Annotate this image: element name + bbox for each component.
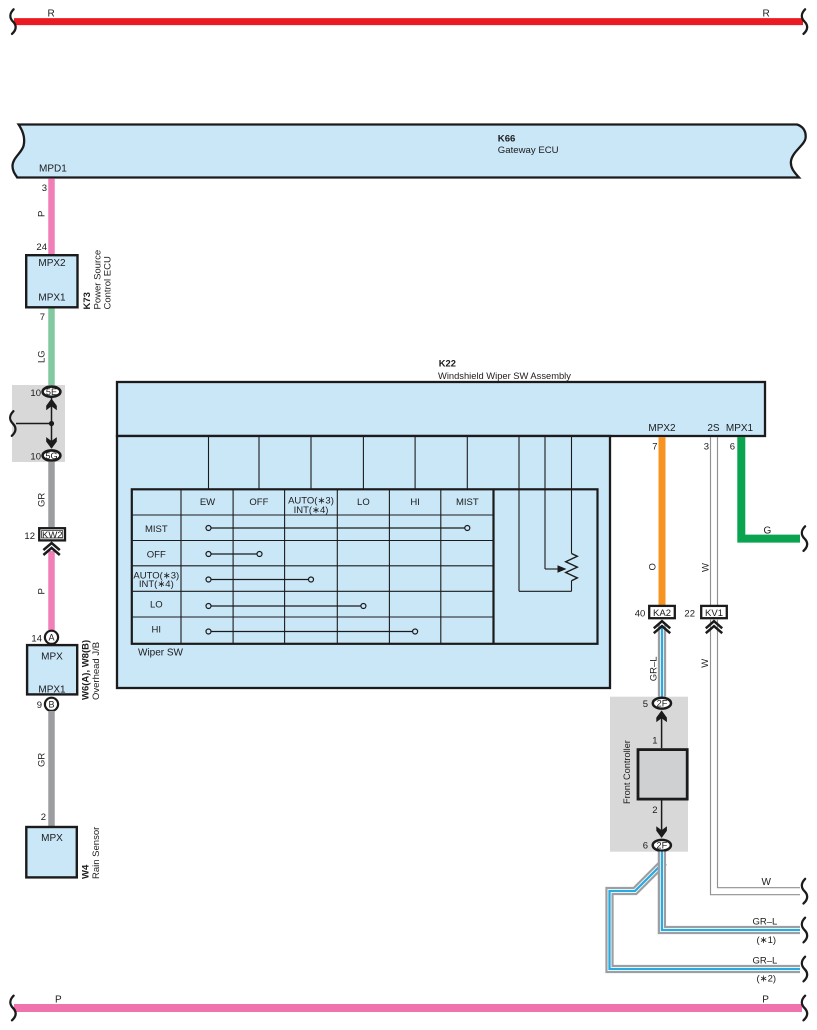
svg-text:INT(∗4): INT(∗4) <box>139 579 174 590</box>
svg-text:INT(∗4): INT(∗4) <box>294 505 329 516</box>
svg-text:MIST: MIST <box>145 524 168 535</box>
svg-text:R: R <box>48 9 55 20</box>
svg-text:10: 10 <box>30 388 41 399</box>
svg-text:B: B <box>48 700 54 710</box>
svg-text:14: 14 <box>31 634 42 645</box>
svg-text:40: 40 <box>635 609 646 620</box>
svg-text:O: O <box>648 563 659 570</box>
svg-text:22: 22 <box>684 609 695 620</box>
svg-text:G: G <box>764 526 772 537</box>
svg-text:GR: GR <box>37 493 48 507</box>
svg-text:LG: LG <box>37 350 48 363</box>
svg-text:OFF: OFF <box>147 550 166 561</box>
svg-text:GR: GR <box>37 753 48 767</box>
svg-text:7: 7 <box>40 312 45 323</box>
svg-text:LO: LO <box>150 599 163 610</box>
svg-text:Wiper SW: Wiper SW <box>138 648 184 659</box>
svg-text:6: 6 <box>643 841 648 852</box>
svg-text:Rain Sensor: Rain Sensor <box>91 827 102 879</box>
svg-text:A: A <box>48 633 54 643</box>
svg-text:Control ECU: Control ECU <box>103 256 114 309</box>
svg-text:2: 2 <box>41 812 46 823</box>
svg-text:P: P <box>55 995 62 1006</box>
svg-text:GR–L: GR–L <box>753 917 778 928</box>
svg-text:W: W <box>701 563 712 572</box>
svg-text:OFF: OFF <box>249 497 268 508</box>
svg-text:W6(A), W8(B): W6(A), W8(B) <box>81 640 92 700</box>
svg-text:MPX: MPX <box>41 833 63 844</box>
svg-text:MPX: MPX <box>41 652 63 663</box>
svg-text:MPX1: MPX1 <box>726 423 754 434</box>
svg-text:(∗2): (∗2) <box>757 974 777 985</box>
svg-text:MPX1: MPX1 <box>38 293 66 304</box>
svg-text:5G: 5G <box>45 451 57 461</box>
svg-text:MPX2: MPX2 <box>38 258 66 269</box>
svg-text:2F: 2F <box>657 841 668 851</box>
svg-text:HI: HI <box>152 625 162 636</box>
svg-text:P: P <box>37 588 48 594</box>
svg-text:LO: LO <box>357 497 370 508</box>
svg-text:K22: K22 <box>439 359 456 369</box>
svg-text:K66: K66 <box>498 134 516 145</box>
svg-text:3: 3 <box>704 442 709 453</box>
svg-text:KA2: KA2 <box>653 608 671 619</box>
svg-text:10: 10 <box>30 452 41 463</box>
svg-text:KV1: KV1 <box>705 608 723 619</box>
svg-text:Windshield Wiper SW Assembly: Windshield Wiper SW Assembly <box>438 371 571 381</box>
svg-text:6: 6 <box>730 442 735 453</box>
svg-text:2S: 2S <box>707 423 720 434</box>
svg-text:2: 2 <box>652 805 657 816</box>
svg-text:W: W <box>762 877 772 888</box>
svg-text:P: P <box>37 211 48 217</box>
svg-text:3: 3 <box>42 183 47 194</box>
svg-text:Front Controller: Front Controller <box>622 740 632 804</box>
svg-text:Gateway ECU: Gateway ECU <box>498 145 559 156</box>
svg-text:(∗1): (∗1) <box>757 935 777 946</box>
svg-text:2F: 2F <box>657 699 668 709</box>
svg-text:EW: EW <box>200 497 215 508</box>
svg-text:Overhead J/B: Overhead J/B <box>91 642 102 700</box>
svg-text:R: R <box>763 9 770 20</box>
svg-text:12: 12 <box>24 531 35 542</box>
svg-text:9: 9 <box>37 700 42 711</box>
svg-text:P: P <box>762 995 769 1006</box>
svg-text:24: 24 <box>36 242 47 253</box>
svg-text:GR–L: GR–L <box>753 956 778 967</box>
svg-text:MPX1: MPX1 <box>38 685 66 696</box>
svg-text:MPX2: MPX2 <box>648 423 676 434</box>
svg-text:MIST: MIST <box>456 497 479 508</box>
svg-text:1: 1 <box>652 736 657 747</box>
svg-text:5: 5 <box>643 699 648 710</box>
svg-text:W: W <box>700 659 711 668</box>
svg-text:K73: K73 <box>82 292 93 309</box>
svg-text:GR–L: GR–L <box>649 656 660 681</box>
svg-text:KW2: KW2 <box>42 530 63 541</box>
svg-text:HI: HI <box>410 497 420 508</box>
svg-text:5E: 5E <box>46 387 57 397</box>
svg-text:W4: W4 <box>81 864 92 879</box>
svg-text:MPD1: MPD1 <box>39 164 67 175</box>
svg-text:7: 7 <box>652 442 657 453</box>
